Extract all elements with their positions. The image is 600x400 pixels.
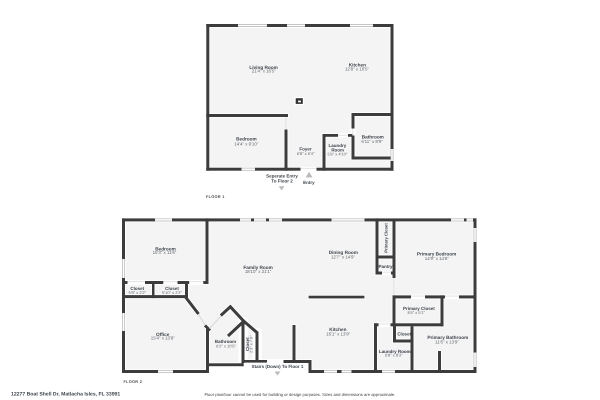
svg-text:12277 Boat Shell Dr, Matlacha: 12277 Boat Shell Dr, Matlacha Isles, FL … bbox=[11, 391, 120, 397]
svg-text:15'3" x 11'6": 15'3" x 11'6" bbox=[153, 250, 177, 255]
svg-text:18'10" x 21'1": 18'10" x 21'1" bbox=[245, 269, 272, 274]
svg-text:6'8" x 8'3": 6'8" x 8'3" bbox=[385, 353, 403, 358]
svg-text:12'8" x 16'5": 12'8" x 16'5" bbox=[345, 67, 370, 72]
svg-text:FLOOR 2: FLOOR 2 bbox=[124, 379, 143, 384]
svg-text:FLOOR 1: FLOOR 1 bbox=[206, 194, 225, 199]
svg-text:5'6" x 4'10": 5'6" x 4'10" bbox=[328, 152, 348, 157]
svg-text:12'7" x 14'9": 12'7" x 14'9" bbox=[331, 254, 356, 259]
svg-text:Entry: Entry bbox=[303, 180, 315, 185]
svg-text:14'9" x 14'6": 14'9" x 14'6" bbox=[425, 256, 450, 261]
svg-text:To Floor 2: To Floor 2 bbox=[271, 178, 293, 183]
svg-text:Primary Closet: Primary Closet bbox=[383, 223, 388, 253]
svg-text:15'4" x 13'8": 15'4" x 13'8" bbox=[151, 336, 176, 341]
svg-text:Stairs (Down) To Floor 1: Stairs (Down) To Floor 1 bbox=[252, 364, 304, 369]
svg-text:14'4" x 9'10": 14'4" x 9'10" bbox=[234, 141, 259, 146]
svg-text:5'9" x 2'2": 5'9" x 2'2" bbox=[129, 290, 147, 295]
svg-text:8'4" x 5'1": 8'4" x 5'1" bbox=[408, 310, 426, 315]
svg-text:Closet: Closet bbox=[397, 331, 411, 336]
svg-text:6'11" x 8'9": 6'11" x 8'9" bbox=[361, 139, 383, 144]
svg-text:11'6" x 13'9": 11'6" x 13'9" bbox=[435, 340, 459, 345]
svg-text:Floor plan/tour cannot be used: Floor plan/tour cannot be used for build… bbox=[205, 392, 396, 397]
svg-text:6'2" x 10'5": 6'2" x 10'5" bbox=[216, 343, 236, 348]
svg-text:Pantry: Pantry bbox=[378, 264, 393, 269]
svg-text:2'3" x 7'9": 2'3" x 7'9" bbox=[249, 335, 254, 353]
svg-text:6'8" x 6'4": 6'8" x 6'4" bbox=[297, 151, 315, 156]
svg-text:21'4" x 16'5": 21'4" x 16'5" bbox=[252, 69, 277, 74]
svg-text:5'10" x 2'2": 5'10" x 2'2" bbox=[162, 290, 182, 295]
svg-text:16'1" x 13'9": 16'1" x 13'9" bbox=[326, 332, 351, 337]
